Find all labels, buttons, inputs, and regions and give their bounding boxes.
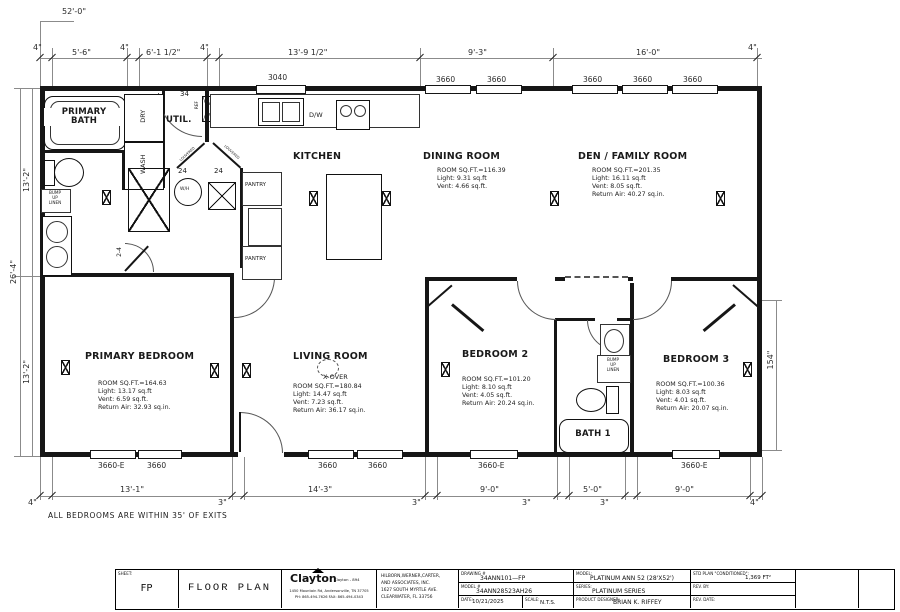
room-name-bedroom3: BEDROOM 3: [663, 355, 729, 365]
dim-ext: [207, 48, 208, 86]
series-value: PLATINUM SERIES: [592, 588, 645, 595]
window-label: 3660: [318, 462, 337, 470]
door-size-bath: 2-4: [117, 242, 123, 262]
scale-label: SCALE:: [525, 597, 540, 602]
room-stats-dining: ROOM SQ.FT.=116.39 Light: 9.31 sq.ft Ven…: [437, 167, 506, 191]
stat-line: Light: 16.11 sq.ft: [592, 175, 665, 183]
cased-opening: [565, 276, 628, 278]
dim-bottom-d: 14'-3": [308, 486, 332, 494]
clayton-addr1: 1450 Mountain Rd, Andersonville, TN 3770…: [283, 589, 375, 593]
window: [425, 85, 471, 94]
dim-bottom-c: 3": [218, 499, 227, 507]
dim-left-lower: 13'-2": [23, 355, 31, 389]
dim-bottom-j: 9'-0": [675, 486, 694, 494]
dim-top-overall: 52'-0": [62, 8, 86, 16]
window: [672, 450, 720, 459]
tb-row-divider: [458, 595, 795, 596]
dim-top-h: 16'-0": [636, 49, 660, 57]
floor-register-icon: [382, 191, 391, 206]
floor-register-icon: [309, 191, 318, 206]
tb-divider: [858, 569, 859, 608]
room-name-primary-bath: PRIMARY BATH: [44, 108, 124, 126]
window: [138, 450, 182, 459]
window-label: 3660: [368, 462, 387, 470]
room-name-dining: DINING ROOM: [423, 152, 500, 162]
closet-wall: [732, 284, 758, 307]
louvered-label: LOUVERED: [179, 146, 196, 162]
door-arc-front: [240, 412, 283, 453]
wall-interior: [671, 277, 757, 281]
stat-line: Return Air: 20.07 sq.in.: [656, 405, 729, 413]
dim-top-e: 4": [200, 44, 209, 52]
door-size-louver-b: 24: [214, 168, 223, 175]
dim-bottom-k: 4": [750, 499, 759, 507]
door-arc-primary-bedroom: [234, 277, 275, 318]
closet-wall: [426, 285, 452, 308]
door-arc-hall-right: [633, 281, 672, 320]
dim-ext: [757, 48, 758, 86]
model-number: 34ANN28523AH26: [476, 588, 532, 595]
clayton-sub: Clayton - 894: [334, 577, 360, 582]
room-name-bedroom2: BEDROOM 2: [462, 350, 528, 360]
clayton-addr2: PH: 865-494-7626 FAX: 865-494-0343: [283, 595, 375, 599]
pantry-label: PANTRY: [245, 257, 266, 263]
pantry-box: [242, 246, 282, 280]
stat-line: Vent: 4.01 sq.ft.: [656, 397, 729, 405]
linen-l3: LINEN: [42, 201, 68, 206]
wall-interior: [555, 277, 565, 281]
dim-bottom-f: 9'-0": [480, 486, 499, 494]
stat-line: Return Air: 40.27 sq.in.: [592, 191, 665, 199]
dim-bottom-e: 3": [412, 499, 421, 507]
dim-top-i: 4": [748, 44, 757, 52]
window-label: 3660: [487, 76, 506, 84]
window-label: 3660-E: [681, 462, 708, 470]
floor-register-icon: [242, 363, 251, 378]
firm-line2: AND ASSOCIATES, INC.: [381, 581, 430, 586]
firm-line4: CLEARWATER, FL 33756: [381, 595, 432, 600]
dim-line: [40, 21, 74, 22]
dim-ext: [127, 48, 128, 86]
xover-label: X-OVER: [323, 374, 348, 381]
dim-line: [20, 88, 21, 457]
dim-top-f: 13'-9 1/2": [288, 49, 327, 57]
sheet-label: SHEET:: [118, 571, 132, 576]
window: [672, 85, 718, 94]
wall-interior: [617, 318, 633, 321]
dryer-label: DRY: [140, 104, 147, 128]
dim-ext: [420, 48, 421, 86]
linen-label: BUMP UP LINEN: [42, 191, 68, 205]
stat-line: Light: 8.10 sq.ft: [462, 384, 535, 392]
window: [476, 85, 522, 94]
date-value: 10/21/2025: [472, 599, 504, 605]
linen-label: BUMP UP LINEN: [598, 358, 628, 372]
title-block-title: FLOOR PLAN: [178, 582, 281, 594]
stat-line: ROOM SQ.FT.=101.20: [462, 376, 535, 384]
stat-line: Vent: 8.05 sq.ft.: [592, 183, 665, 191]
dim-ext: [553, 48, 554, 86]
toilet-bowl: [576, 388, 606, 412]
dim-bottom-a: 4": [28, 499, 37, 507]
window: [470, 450, 518, 459]
std-plan-label: STD PLAN "CONDITIONED":: [693, 571, 749, 576]
room-stats-primary-bedroom: ROOM SQ.FT.=164.63 Light: 13.17 sq.ft Ve…: [98, 380, 171, 412]
dim-ext: [762, 300, 782, 301]
closet-door-leaf: [451, 303, 484, 332]
dim-bottom-h: 5'-0": [583, 486, 602, 494]
room-stats-den: ROOM SQ.FT.=201.35 Light: 16.11 sq.ft Ve…: [592, 167, 665, 199]
stat-line: Light: 14.47 sq.ft: [293, 391, 366, 399]
dishwasher-label: D/W: [309, 112, 323, 119]
dim-top-b: 5'-6": [72, 49, 91, 57]
shower: [128, 168, 170, 232]
burner: [354, 105, 366, 117]
series-label: SERIES:: [576, 584, 592, 589]
sheet-value: FP: [115, 583, 178, 594]
window-label: 3660-E: [98, 462, 125, 470]
toilet-tank: [606, 386, 619, 414]
stat-line: ROOM SQ.FT.=100.36: [656, 381, 729, 389]
drawing-number: 34ANN101—FP: [480, 575, 525, 582]
stat-line: Vent: 6.59 sq.ft.: [98, 396, 171, 404]
dim-line: [32, 88, 33, 457]
dim-top-d: 6'-1 1/2": [146, 49, 180, 57]
window-label: 3040: [268, 74, 287, 82]
floor-plan-sheet: 52'-0" 4" 5'-6" 4" 6'-1 1/2" 4" 13'-9 1/…: [0, 0, 900, 612]
wall-interior: [425, 277, 517, 281]
window: [308, 450, 354, 459]
floor-register-icon: [716, 191, 725, 206]
sink: [46, 246, 68, 268]
window: [622, 85, 668, 94]
room-name-den: DEN / FAMILY ROOM: [578, 152, 687, 162]
floor-register-icon: [210, 363, 219, 378]
door-size-louver-a: 24: [178, 168, 187, 175]
dim-line: [776, 300, 777, 450]
stat-line: ROOM SQ.FT.=201.35: [592, 167, 665, 175]
tb-divider: [281, 569, 282, 608]
dim-top-a: 4": [33, 44, 42, 52]
door-leaf: [239, 412, 241, 452]
rev-date-label: REV. DATE:: [693, 597, 715, 602]
dim-top-c: 4": [120, 44, 129, 52]
stat-line: ROOM SQ.FT.=180.84: [293, 383, 366, 391]
window: [90, 450, 136, 459]
dim-right-bed3: 154": [767, 347, 775, 373]
pantry-label: PANTRY: [245, 183, 266, 189]
window: [357, 450, 403, 459]
room-name-util: UTIL.: [166, 116, 192, 125]
kitchen-sink-basin: [262, 102, 280, 122]
stat-line: Vent: 4.05 sq.ft.: [462, 392, 535, 400]
tb-divider: [690, 569, 691, 608]
water-heater-label: W/H: [180, 188, 189, 193]
window-label: 3660: [147, 462, 166, 470]
stat-line: Vent: 4.66 sq.ft.: [437, 183, 506, 191]
room-name-bath1: BATH 1: [559, 430, 627, 439]
door-arc-hall-left: [517, 281, 556, 320]
scale-value: N.T.S.: [540, 600, 556, 606]
firm-line1: HILBORN,WERNER,CARTER,: [381, 574, 440, 579]
tb-divider: [376, 569, 377, 608]
stat-line: Return Air: 32.93 sq.in.: [98, 404, 171, 412]
pantry-box: [242, 172, 282, 206]
window-label: 3660: [436, 76, 455, 84]
dim-bottom-i: 3": [600, 499, 609, 507]
cabinet: [208, 182, 236, 210]
tb-divider: [795, 569, 796, 608]
kitchen-island: [326, 174, 382, 260]
sink: [604, 329, 624, 353]
floor-register-icon: [441, 362, 450, 377]
window: [572, 85, 618, 94]
sink: [46, 221, 68, 243]
floor-register-icon: [550, 191, 559, 206]
stat-line: Vent: 7.23 sq.ft.: [293, 399, 366, 407]
dim-line: [40, 58, 762, 59]
dim-ext: [14, 88, 40, 89]
toilet-bowl: [54, 158, 84, 187]
stat-line: Light: 9.31 sq.ft: [437, 175, 506, 183]
room-stats-living: ROOM SQ.FT.=180.84 Light: 14.47 sq.ft Ve…: [293, 383, 366, 415]
room-stats-bedroom2: ROOM SQ.FT.=101.20 Light: 8.10 sq.ft Ven…: [462, 376, 535, 408]
designer-value: BRIAN K. RIFFEY: [613, 599, 662, 606]
tb-divider: [458, 569, 459, 608]
linen-l3: LINEN: [598, 368, 628, 373]
door-size-util: 34: [180, 91, 189, 98]
wall-interior: [554, 320, 557, 455]
tb-row-divider: [458, 582, 795, 583]
tb-divider: [573, 569, 574, 608]
dim-line: [40, 496, 762, 497]
ref-label: REF: [195, 97, 199, 113]
floor-register-icon: [61, 360, 70, 375]
dim-ext: [139, 48, 140, 86]
stat-line: Return Air: 20.24 sq.in.: [462, 400, 535, 408]
kitchen-sink-basin: [282, 102, 300, 122]
burner: [340, 105, 352, 117]
stat-line: ROOM SQ.FT.=116.39: [437, 167, 506, 175]
std-plan-value: 1,369 FT²: [745, 575, 771, 581]
model-value: PLATINUM ANN 52 (28'X52'): [590, 575, 674, 582]
firm-line3: 1627 SOUTH MYRTLE AVE.: [381, 588, 438, 593]
window: [256, 85, 306, 94]
room-stats-bedroom3: ROOM SQ.FT.=100.36 Light: 8.03 sq.ft Ven…: [656, 381, 729, 413]
closet-door-leaf: [703, 303, 736, 332]
dim-ext: [762, 450, 782, 451]
wall-interior: [40, 150, 125, 153]
dim-ext: [14, 456, 40, 457]
room-name-kitchen: KITCHEN: [293, 152, 341, 162]
clayton-logo: Clayton: [290, 572, 337, 585]
dim-top-g: 9'-3": [468, 49, 487, 57]
cabinet: [248, 208, 282, 246]
dim-ext: [52, 48, 53, 86]
dim-bottom-b: 13'-1": [120, 486, 144, 494]
stat-line: Light: 8.03 sq.ft: [656, 389, 729, 397]
tb-row-divider: [522, 595, 523, 608]
dim-bottom-g: 3": [522, 499, 531, 507]
dim-ext: [219, 48, 220, 86]
dim-left-overall: 26'-4": [10, 255, 18, 289]
wall-exterior-right: [757, 86, 762, 457]
exit-note: ALL BEDROOMS ARE WITHIN 35' OF EXITS: [48, 512, 227, 520]
dim-left-upper: 13'-2": [23, 163, 31, 197]
stat-line: ROOM SQ.FT.=164.63: [98, 380, 171, 388]
window-label: 3660: [633, 76, 652, 84]
floor-register-icon: [743, 362, 752, 377]
window-label: 3660: [683, 76, 702, 84]
window-label: 3660-E: [478, 462, 505, 470]
primary-bath-line2: BATH: [44, 117, 124, 126]
clayton-roof-icon: [312, 568, 324, 573]
dim-line: [40, 21, 41, 86]
window-label: 3660: [583, 76, 602, 84]
rev-by-label: REV. BY:: [693, 584, 709, 589]
stat-line: Light: 13.17 sq.ft: [98, 388, 171, 396]
floor-register-icon: [102, 190, 111, 205]
room-name-primary-bedroom: PRIMARY BEDROOM: [85, 352, 194, 362]
stat-line: Return Air: 36.17 sq.in.: [293, 407, 366, 415]
